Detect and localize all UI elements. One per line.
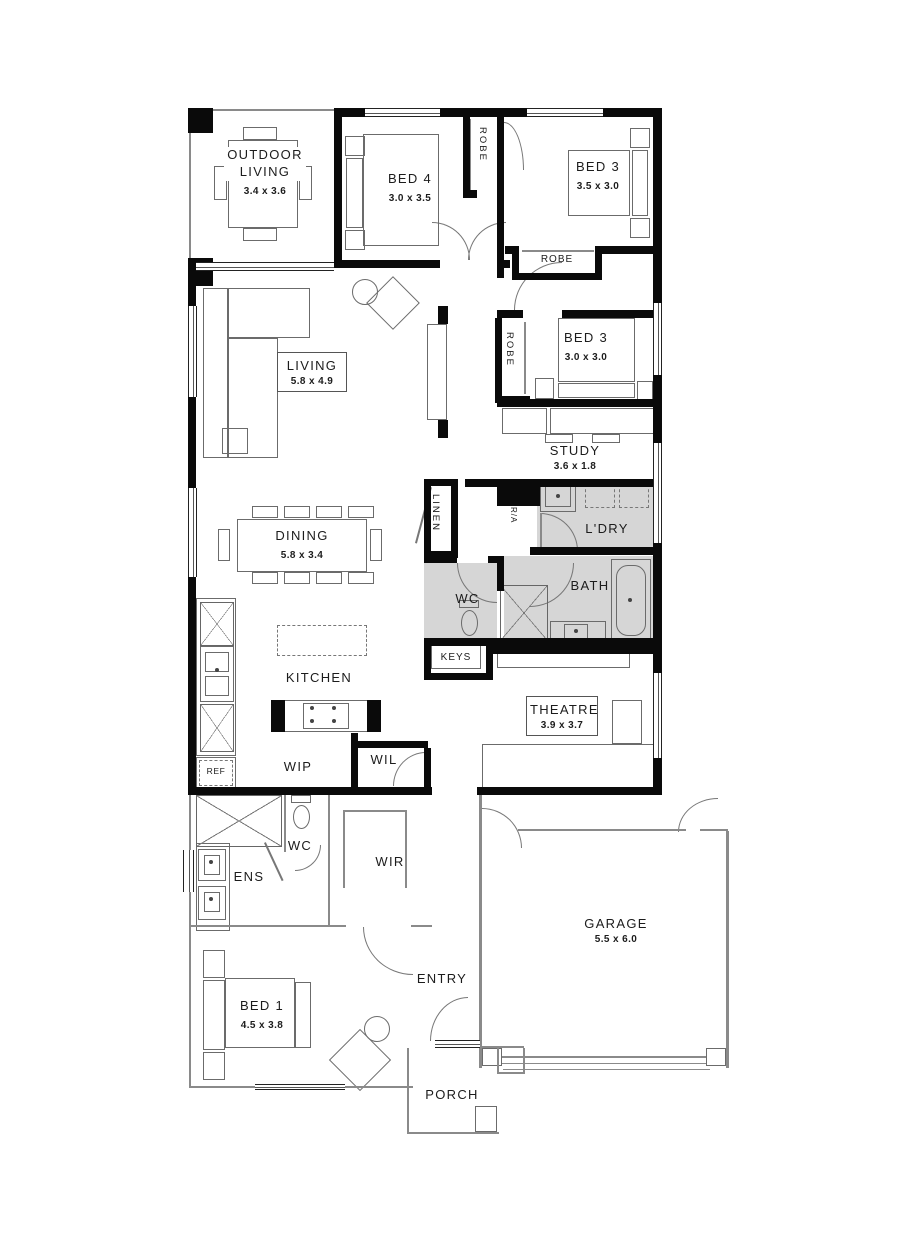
dashed-fixture [277,625,367,656]
tap-dot [209,860,213,864]
wall-segment [562,310,662,318]
furniture-outline [243,127,277,140]
door-swing-arc [678,798,718,832]
fixture-outline [293,805,310,829]
thin-wall-line [726,831,729,1068]
door-swing-arc [430,997,468,1041]
thin-wall-line [523,1048,525,1074]
room-label-wc: WC [445,591,490,608]
furniture-outline [243,228,277,241]
thin-wall-line [479,795,482,1068]
thin-wall-line [405,810,407,888]
tap-dot [574,629,578,633]
room-label-porch: PORCH [419,1087,485,1104]
room-label-living: LIVING 5.8 x 4.9 [277,352,347,392]
wall-segment [424,673,493,680]
window [435,1040,480,1048]
wall-segment [188,397,196,488]
wall-segment [367,700,381,732]
furniture-outline [291,795,311,803]
furniture-outline [475,1106,497,1132]
tap-dot [628,598,632,602]
wall-segment [358,741,428,748]
furniture-outline [482,744,657,788]
furniture-outline [203,1052,225,1080]
room-label-ens: ENS [228,869,270,886]
wall-segment [477,787,662,795]
wall-segment [438,306,448,324]
window [183,850,194,892]
window [527,108,603,117]
room-label-entry: ENTRY [413,971,471,988]
room-label-outdoor-living: OUTDOOR LIVING 3.4 x 3.6 [213,147,317,199]
wall-segment [497,108,504,278]
door-swing-arc [363,927,413,975]
wall-segment [188,286,196,306]
furniture-outline [558,383,635,398]
thin-wall-line [540,513,542,551]
floor-plan: OUTDOOR LIVING 3.4 x 3.6 BED 4 3.0 x 3.5… [0,0,900,1245]
furniture-outline [316,572,342,584]
room-label-wir: WIR [363,854,417,871]
furniture-outline [502,408,547,434]
furniture-outline [550,408,655,434]
furniture-outline [497,652,630,668]
tap-dot [215,668,219,672]
thin-wall-line [522,250,594,252]
room-label-bed3-mid: BED 3 3.0 x 3.0 [546,329,626,365]
room-size: 3.4 x 3.6 [241,186,290,197]
room-label-bed1: BED 1 4.5 x 3.8 [222,997,302,1033]
thin-wall-line [411,925,432,927]
thin-wall-line [407,1048,409,1134]
room-label-keys: KEYS [433,651,479,664]
tap-dot [556,494,560,498]
thin-wall-line [407,1132,499,1134]
furniture-outline [222,428,248,454]
wall-segment [188,787,432,795]
label-robe-top: ROBE [477,127,488,162]
label-return-air: R/A [509,507,518,523]
room-label-study: STUDY 3.6 x 1.8 [534,443,616,472]
door-swing-arc [482,808,522,848]
furniture-outline [284,506,310,518]
furniture-outline [345,136,365,156]
wall-segment [653,108,662,303]
room-label-kitchen: KITCHEN [276,670,362,687]
window [653,487,662,543]
thin-wall-line [497,1048,499,1074]
wall-segment [512,273,602,280]
shower-x-box [200,704,234,752]
window [653,303,662,375]
furniture-outline [592,434,620,443]
furniture-outline [252,572,278,584]
window [653,443,662,487]
furniture-outline [252,506,278,518]
furniture-outline [348,506,374,518]
shower-x-box [500,585,548,641]
wall-segment [188,108,213,133]
wall-segment [530,547,653,555]
wall-segment [486,645,493,676]
furniture-outline [348,572,374,584]
tap-dot [209,897,213,901]
wall-segment [334,108,342,268]
wall-segment [424,638,653,646]
wall-segment [497,310,523,318]
wall-segment [463,108,470,198]
wall-segment [465,479,661,487]
furniture-outline [205,676,229,696]
furniture-outline [228,288,310,338]
wall-segment [334,260,436,268]
room-label-ref: REF [199,766,233,777]
thin-wall-line [700,829,728,831]
room-label-wil: WIL [361,752,407,769]
window [188,306,197,397]
tap-dot [310,706,314,710]
furniture-outline [284,572,310,584]
shower-x-box [200,602,234,646]
furniture-outline [346,158,363,228]
tap-dot [332,706,336,710]
wall-segment [428,260,440,268]
wall-segment [424,556,457,563]
room-label-theatre: THEATRE 3.9 x 3.7 [526,696,598,736]
door-swing-arc [514,262,562,310]
thin-wall-line [343,810,407,812]
shower-x-box [196,795,282,847]
window [653,673,662,758]
furniture-outline [204,892,220,912]
window [365,108,440,117]
thin-wall-line [343,810,345,888]
wall-segment [271,700,285,732]
fixture-outline [461,610,478,636]
thin-wall-line [189,925,346,927]
tap-dot [310,719,314,723]
room-label-bed4: BED 4 3.0 x 3.5 [368,170,452,206]
wall-segment [653,543,662,673]
furniture-outline [218,529,230,561]
wall-segment [498,260,510,268]
room-label-wip: WIP [270,759,326,776]
furniture-outline [203,950,225,978]
room-label-dining: DINING 5.8 x 3.4 [252,527,352,563]
furniture-outline [630,128,650,148]
door-swing-arc [504,122,524,170]
thin-wall-line [524,322,526,394]
wall-segment [351,733,358,793]
furniture-outline [535,378,554,399]
window [255,1084,345,1090]
thin-wall-line [189,789,191,1088]
wall-segment [424,748,431,788]
room-name: OUTDOOR LIVING [224,147,306,181]
furniture-outline [545,434,573,443]
wall-segment [495,318,502,403]
furniture-outline [482,1048,502,1066]
wall-segment [653,375,662,443]
thin-wall-line [328,795,330,927]
room-label-bed3-top: BED 3 3.5 x 3.0 [556,158,640,194]
thin-wall-line [518,829,686,831]
window [188,488,197,577]
dashed-fixture [585,484,615,508]
thin-wall-line [502,1056,706,1058]
furniture-outline [204,855,220,875]
thin-wall-line [503,1069,710,1070]
dashed-fixture [619,484,649,508]
furniture-outline [706,1048,726,1066]
label-linen: LINEN [430,494,441,532]
thin-wall-line [480,1046,524,1048]
room-label-ldry: L'DRY [575,521,639,538]
label-robe-bed3a: ROBE [520,253,594,266]
furniture-outline [427,324,447,420]
label-robe-bed3b: ROBE [504,332,515,367]
furniture-outline [630,218,650,238]
furniture-outline [612,700,642,744]
wall-segment [493,646,653,654]
furniture-outline [316,506,342,518]
tap-dot [332,719,336,723]
wall-segment [497,556,504,591]
wall-segment [451,479,458,558]
thin-wall-line [497,1072,525,1074]
furniture-outline [345,230,365,250]
room-label-bath: BATH [562,578,618,595]
wall-segment [497,399,662,407]
room-label-garage: GARAGE 5.5 x 6.0 [568,916,664,945]
wall-segment [424,645,431,676]
thin-wall-line [502,1063,706,1064]
wall-segment [497,481,540,506]
room-label-wc-ens: WC [284,838,316,855]
wall-segment [463,190,477,198]
wall-segment [438,420,448,438]
window [196,262,334,271]
wall-segment [188,577,196,789]
furniture-outline [370,529,382,561]
